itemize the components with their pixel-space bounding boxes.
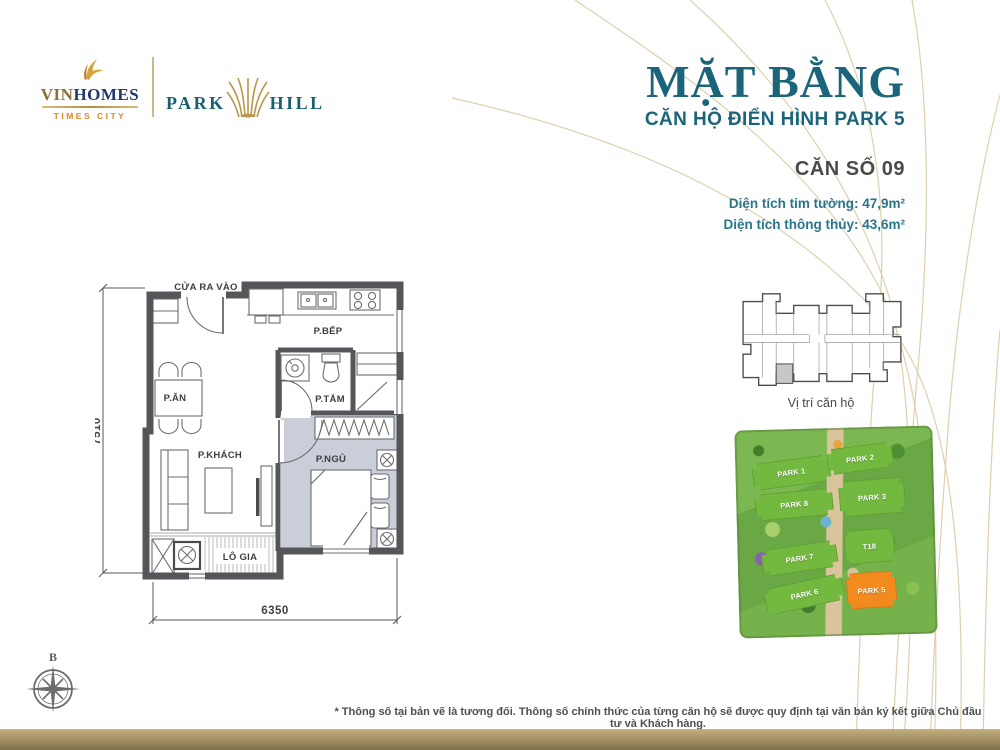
- vinhomes-vin: VIN: [41, 85, 74, 104]
- vinhomes-bird-icon: [73, 55, 107, 81]
- logo-divider: [152, 57, 154, 117]
- building-label: PARK 2: [846, 452, 875, 465]
- building-t18: T18: [843, 527, 896, 565]
- parkhill-hill: HILL: [270, 94, 325, 118]
- parkhill-park: PARK: [166, 94, 226, 118]
- tv-cabinet: [256, 466, 272, 526]
- right-closet: [357, 353, 397, 375]
- parkhill-frond-icon: [226, 72, 270, 118]
- building-label: PARK 8: [780, 499, 809, 511]
- tower-footprint-diagram: [733, 286, 909, 398]
- building-park3: PARK 3: [838, 477, 907, 518]
- toilet-icon: [322, 354, 340, 382]
- unit-areas: Diện tích tim tường: 47,9m² Diện tích th…: [723, 194, 905, 236]
- footnote: * Thông số tại bản vẽ là tương đối. Thôn…: [330, 706, 986, 730]
- building-park8: PARK 8: [754, 487, 834, 521]
- bottom-bar: [0, 729, 1000, 750]
- building-label: PARK 3: [858, 491, 887, 502]
- furniture-layer: [150, 289, 397, 574]
- nightstand-fan-icon: [377, 450, 397, 470]
- label-kitchen: P.BẾP: [314, 326, 343, 337]
- building-park7: PARK 7: [760, 539, 839, 577]
- kitchen-sink-icon: [298, 292, 336, 309]
- nightstand-fan-icon: [377, 529, 397, 549]
- dim-height-label: 7510: [95, 417, 103, 445]
- coffee-table: [205, 468, 232, 513]
- building-label: PARK 7: [785, 552, 814, 565]
- label-bathroom: P.TẮM: [315, 394, 345, 405]
- vinhomes-homes: HOMES: [73, 85, 139, 104]
- building-park5-highlighted: PARK 5: [845, 571, 897, 610]
- vinhomes-rule: [42, 106, 138, 108]
- dim-width-label: 6350: [261, 605, 289, 617]
- building-label: PARK 5: [857, 585, 886, 596]
- page-subtitle: CĂN HỘ ĐIỂN HÌNH PARK 5: [645, 109, 905, 131]
- site-map: PARK 1 PARK 2 PARK 8 PARK 3 PARK 7 T18 P…: [734, 425, 937, 638]
- loggia-window: [189, 570, 205, 582]
- vinhomes-tagline: TIMES CITY: [40, 111, 140, 121]
- dimension-7510: 7510: [95, 284, 145, 577]
- parkhill-logo: PARK HILL: [166, 72, 325, 118]
- vinhomes-logo: VINHOMES TIMES CITY: [40, 55, 140, 121]
- label-dining: P.ĂN: [164, 393, 187, 404]
- ac-unit-icon: [152, 539, 200, 574]
- area-net: Diện tích thông thủy: 43,6m²: [723, 215, 905, 236]
- shower-screen: [357, 382, 387, 410]
- kitchen-window: [394, 310, 406, 352]
- label-loggia: LÔ GIA: [223, 551, 258, 563]
- unit-info: CĂN SỐ 09 Diện tích tim tường: 47,9m² Di…: [723, 158, 905, 236]
- building-label: T18: [862, 541, 876, 551]
- label-entrance: CỬA RA VÀO: [174, 281, 237, 293]
- building-label: PARK 1: [777, 466, 806, 479]
- building-park6: PARK 6: [763, 573, 847, 617]
- bathroom-window: [394, 380, 406, 414]
- washer-icon: [281, 355, 309, 381]
- brochure-page: VINHOMES TIMES CITY PARK HILL MẶT BẰNG C…: [0, 0, 1000, 750]
- building-park2: PARK 2: [826, 441, 895, 475]
- location-caption: Vị trí căn hộ: [733, 396, 909, 410]
- label-bedroom: P.NGỦ: [316, 453, 346, 465]
- unit-number: CĂN SỐ 09: [723, 158, 905, 181]
- area-gross: Diện tích tim tường: 47,9m²: [723, 194, 905, 215]
- fridge: [249, 289, 283, 315]
- bathroom-door: [281, 380, 312, 418]
- sofa: [161, 450, 188, 530]
- title-block: MẶT BẰNG CĂN HỘ ĐIỂN HÌNH PARK 5: [645, 58, 905, 131]
- bedroom-window: [323, 545, 369, 557]
- page-title: MẶT BẰNG: [645, 58, 905, 106]
- label-living: P.KHÁCH: [198, 450, 242, 461]
- vinhomes-wordmark: VINHOMES: [40, 86, 140, 103]
- stove-icon: [350, 290, 380, 310]
- wardrobe: [315, 417, 394, 439]
- highlighted-unit: [776, 364, 793, 383]
- building-park1: PARK 1: [751, 454, 832, 491]
- compass-north-label: B: [49, 650, 57, 664]
- compass-rose: B: [20, 650, 86, 722]
- floor-plan: 7510 6350 CỬA RA VÀO P.BẾP P.ĂN P.TẮM P.…: [95, 268, 430, 628]
- entrance-door-arc: [187, 297, 223, 333]
- building-label: PARK 6: [790, 587, 819, 602]
